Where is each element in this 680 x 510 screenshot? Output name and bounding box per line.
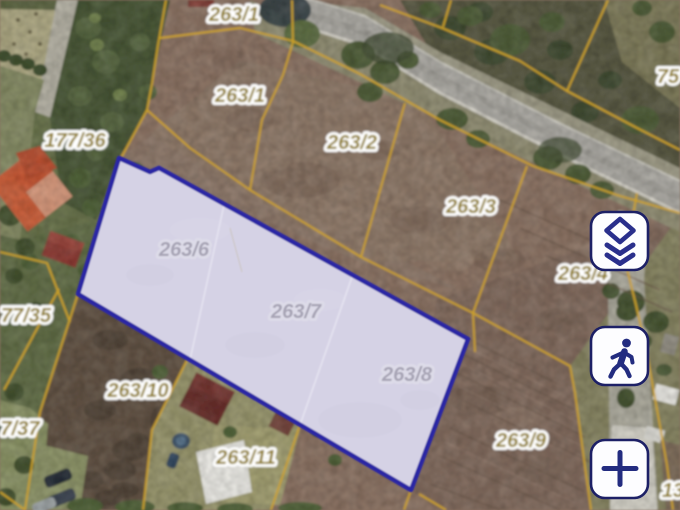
svg-text:263/7: 263/7 [270, 301, 322, 323]
svg-text:7/37: 7/37 [1, 418, 41, 440]
svg-text:263/10: 263/10 [106, 380, 168, 402]
svg-text:263/1: 263/1 [208, 4, 259, 26]
svg-text:263/3: 263/3 [445, 196, 496, 218]
svg-text:263/11: 263/11 [215, 447, 276, 469]
svg-text:263/8: 263/8 [381, 364, 433, 386]
svg-text:75: 75 [657, 66, 680, 88]
svg-text:13: 13 [662, 480, 680, 502]
svg-text:77/35: 77/35 [1, 305, 52, 327]
svg-text:263/9: 263/9 [495, 430, 547, 452]
svg-text:263/1: 263/1 [214, 85, 265, 107]
svg-text:263/6: 263/6 [158, 239, 210, 261]
svg-text:177/36: 177/36 [44, 130, 106, 152]
svg-text:263/2: 263/2 [326, 132, 377, 154]
